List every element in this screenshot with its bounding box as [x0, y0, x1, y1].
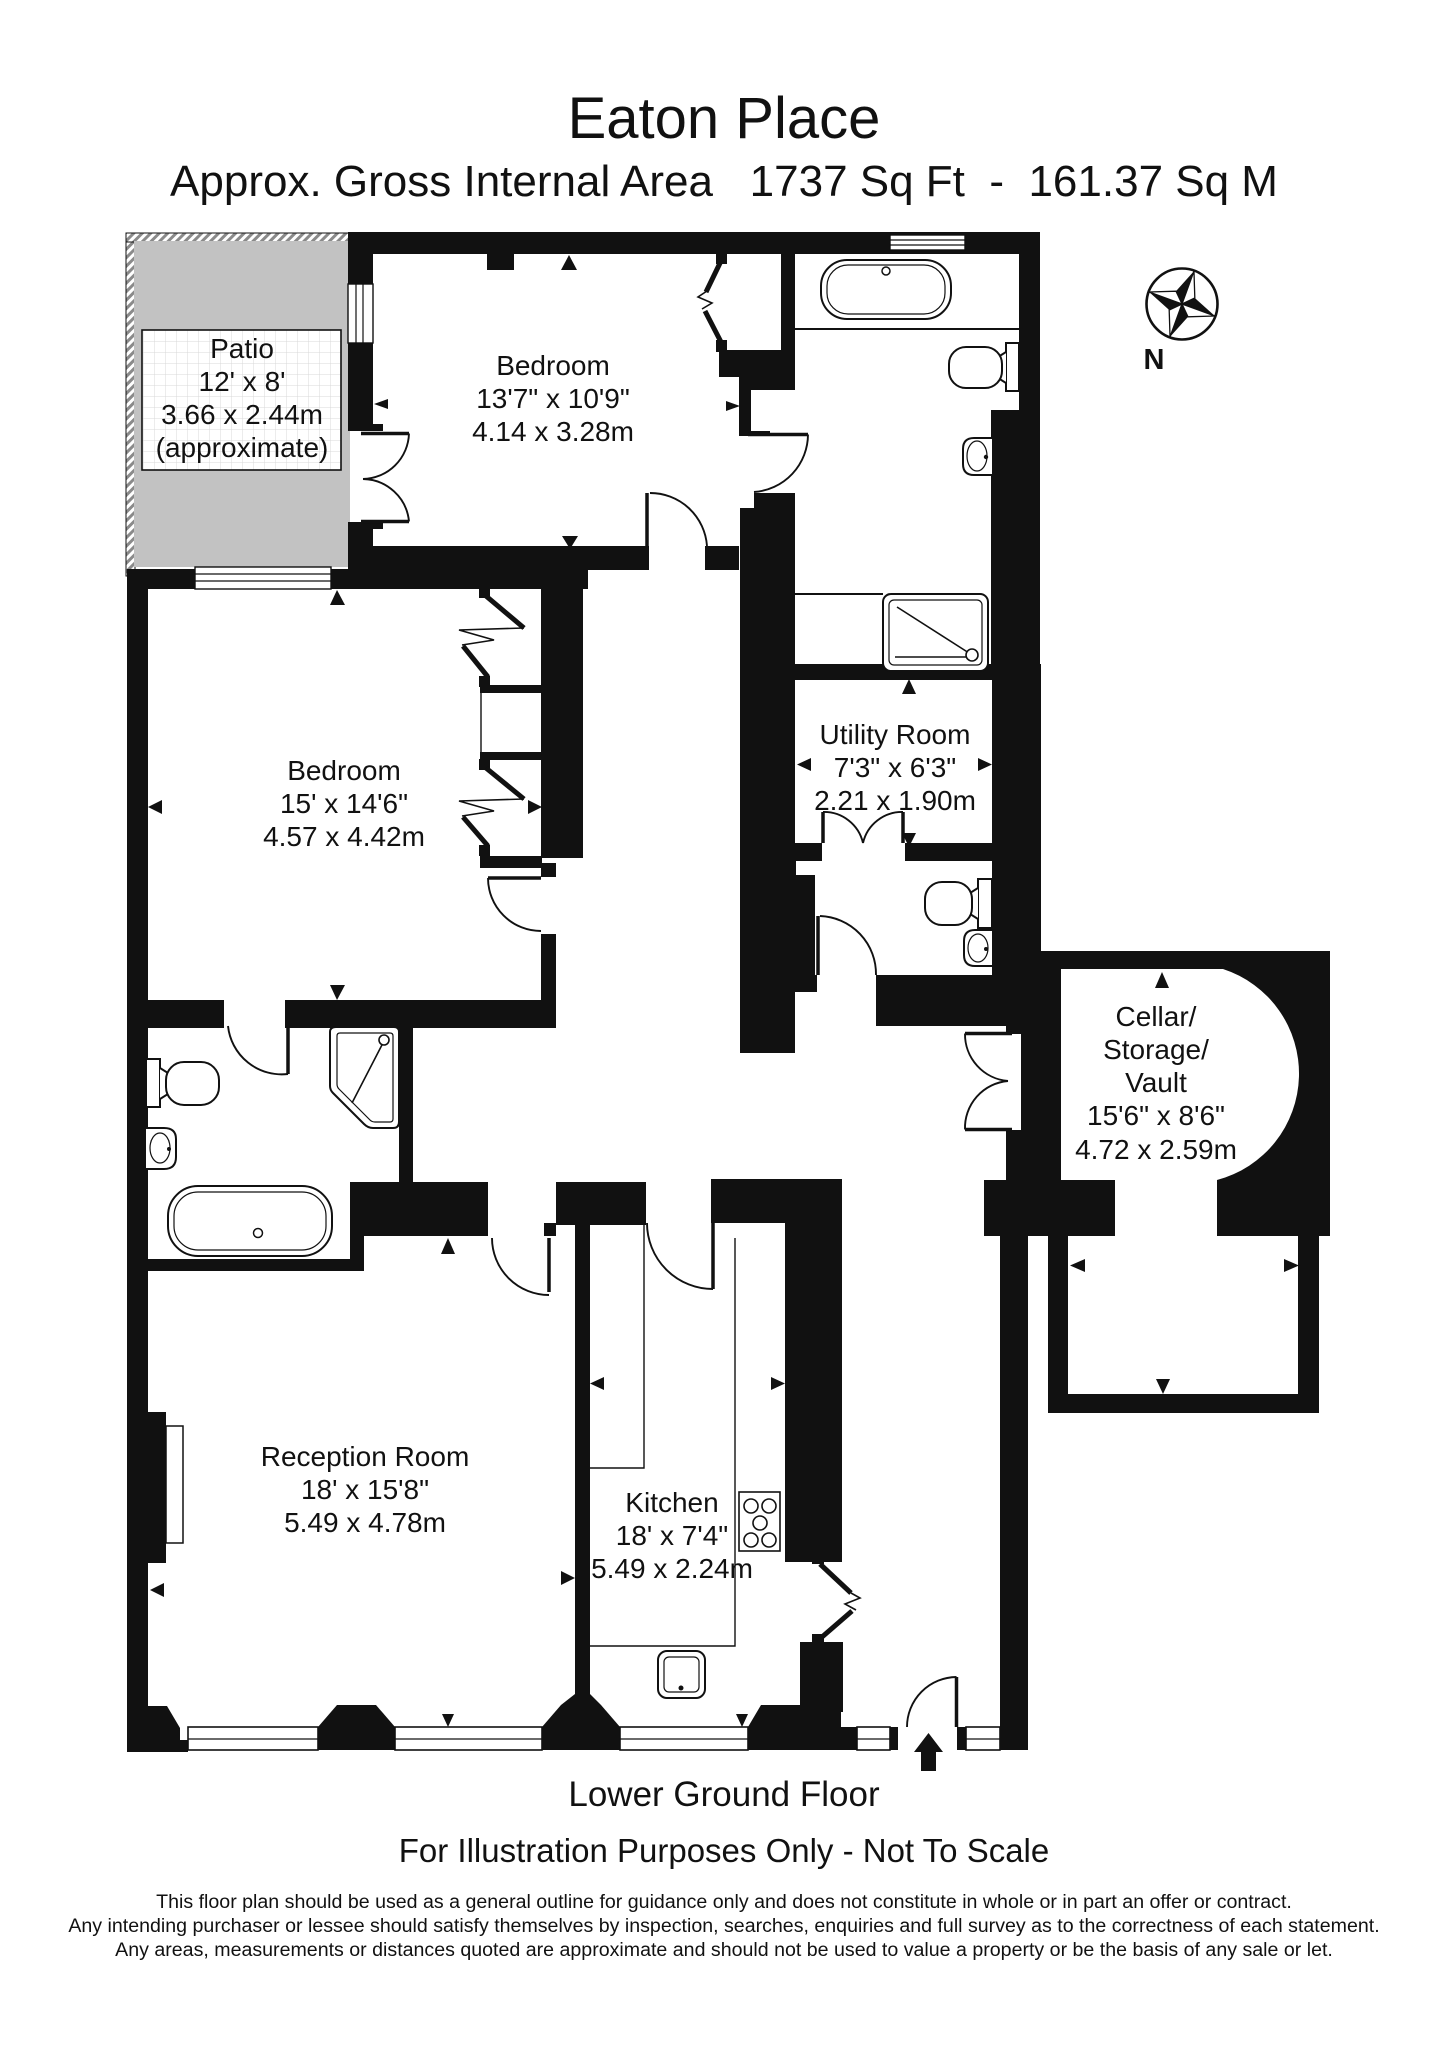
svg-text:18' x 7'4": 18' x 7'4" — [616, 1520, 728, 1551]
svg-text:5.49 x 4.78m: 5.49 x 4.78m — [284, 1507, 446, 1538]
svg-text:For Illustration Purposes Only: For Illustration Purposes Only - Not To … — [399, 1832, 1050, 1869]
svg-text:5.49 x 2.24m: 5.49 x 2.24m — [591, 1553, 753, 1584]
svg-text:Bedroom: Bedroom — [287, 755, 401, 786]
svg-text:15'6" x 8'6": 15'6" x 8'6" — [1087, 1100, 1225, 1131]
svg-text:Approx. Gross Internal Area: Approx. Gross Internal Area 1737 Sq Ft -… — [170, 157, 1278, 206]
svg-text:Patio: Patio — [210, 333, 274, 364]
svg-text:Utility Room: Utility Room — [820, 719, 971, 750]
svg-text:Any intending purchaser or les: Any intending purchaser or lessee should… — [68, 1915, 1379, 1937]
svg-text:Kitchen: Kitchen — [625, 1487, 718, 1518]
svg-text:Lower Ground Floor: Lower Ground Floor — [568, 1775, 880, 1814]
svg-text:15' x 14'6": 15' x 14'6" — [280, 788, 408, 819]
svg-text:18' x 15'8": 18' x 15'8" — [301, 1474, 429, 1505]
svg-text:3.66 x 2.44m: 3.66 x 2.44m — [161, 399, 323, 430]
svg-text:This floor plan should be used: This floor plan should be used as a gene… — [156, 1891, 1292, 1913]
svg-text:Bedroom: Bedroom — [496, 350, 610, 381]
svg-text:Vault: Vault — [1125, 1067, 1187, 1098]
svg-text:4.57 x 4.42m: 4.57 x 4.42m — [263, 821, 425, 852]
svg-text:12' x 8': 12' x 8' — [199, 366, 286, 397]
svg-text:4.14 x 3.28m: 4.14 x 3.28m — [472, 416, 634, 447]
svg-text:Any areas, measurements or dis: Any areas, measurements or distances quo… — [115, 1939, 1333, 1961]
svg-text:Cellar/: Cellar/ — [1116, 1001, 1197, 1032]
svg-text:Eaton Place: Eaton Place — [568, 86, 881, 151]
svg-text:7'3" x 6'3": 7'3" x 6'3" — [834, 752, 956, 783]
svg-text:(approximate): (approximate) — [156, 432, 329, 463]
svg-text:2.21 x 1.90m: 2.21 x 1.90m — [814, 785, 976, 816]
svg-text:13'7" x 10'9": 13'7" x 10'9" — [476, 383, 630, 414]
svg-text:4.72 x 2.59m: 4.72 x 2.59m — [1075, 1134, 1237, 1165]
svg-text:Reception Room: Reception Room — [261, 1441, 470, 1472]
svg-text:Storage/: Storage/ — [1103, 1034, 1209, 1065]
svg-text:N: N — [1144, 344, 1165, 376]
